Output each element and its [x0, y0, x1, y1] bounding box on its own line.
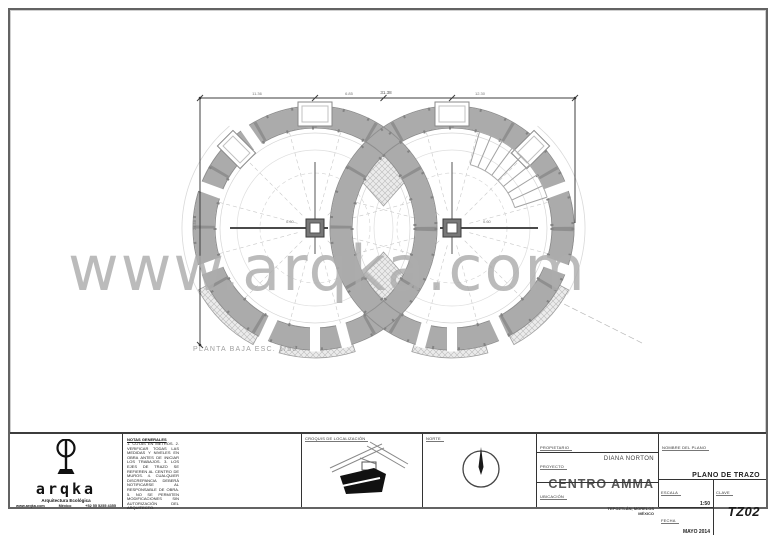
- north-cell: NORTE: [422, 434, 536, 507]
- notes-cell: NOTAS GENERALES 1. COTAS EN METROS. 2. V…: [122, 434, 301, 507]
- dim-seg-right: 12.30: [475, 91, 486, 96]
- project-row: PROYECTO CENTRO AMMA: [537, 452, 658, 482]
- sheet-key-row: CLAVE TZ02: [713, 480, 766, 535]
- owner-label: PROPIETARIO: [540, 445, 572, 451]
- floor-plan-drawing: 0.60 0.60 31.38 11.36 6.85 12.30 24.58 P…: [10, 10, 778, 446]
- croquis-label: CROQUIS DE LOCALIZACIÓN: [305, 436, 368, 442]
- scale-label: ESCALA: [661, 490, 681, 496]
- logo-cell: arqka Arquitectura Ecológica www.arqka.c…: [10, 434, 122, 507]
- center-dim-left: 0.60: [286, 219, 295, 224]
- key-label: CLAVE: [716, 490, 733, 496]
- sheet-border: 0.60 0.60 31.38 11.36 6.85 12.30 24.58 P…: [8, 8, 768, 509]
- dim-height: 24.58: [192, 219, 197, 230]
- scale-row: ESCALA 1:50: [659, 480, 713, 507]
- contact-city: México: [59, 504, 72, 508]
- dim-seg-mid: 6.85: [345, 91, 354, 96]
- north-label: NORTE: [426, 436, 444, 442]
- location-sketch: [302, 434, 423, 505]
- location-row: UBICACIÓN TEPOZTLÁN, MORELOS MÉXICO: [537, 482, 658, 516]
- owner-row: PROPIETARIO DIANA NORTON: [537, 434, 658, 452]
- project-label: PROYECTO: [540, 464, 567, 470]
- sheet-key-value: TZ02: [716, 504, 763, 519]
- contact-web: www.arqka.com: [16, 504, 45, 508]
- sheet-cell: NOMBRE DEL PLANO PLANO DE TRAZO ESCALA 1…: [658, 434, 766, 507]
- north-arrow-icon: [423, 434, 537, 505]
- logo-contact: www.arqka.com México +52 55 5255 4355: [10, 503, 122, 508]
- logo-name: arqka: [10, 482, 122, 497]
- notes-body: 1. COTAS EN METROS. 2. VERIFICAR TODAS L…: [127, 442, 179, 511]
- title-block: arqka Arquitectura Ecológica www.arqka.c…: [10, 432, 766, 507]
- sheet-name-row: NOMBRE DEL PLANO PLANO DE TRAZO: [659, 434, 766, 479]
- date-value: MAYO 2014: [661, 529, 710, 535]
- plan-caption: PLANTA BAJA ESC. 1/50: [193, 346, 297, 353]
- location-label: UBICACIÓN: [540, 494, 567, 500]
- contact-phone: +52 55 5255 4355: [85, 504, 116, 508]
- project-info-cell: PROPIETARIO DIANA NORTON PROYECTO CENTRO…: [536, 434, 658, 507]
- dim-total: 31.38: [380, 90, 392, 95]
- arqka-logo-icon: [46, 439, 86, 477]
- sheet-name-value: PLANO DE TRAZO: [662, 472, 760, 479]
- date-row: FECHA MAYO 2014: [659, 507, 713, 535]
- location-line2: MÉXICO: [540, 511, 654, 516]
- dim-seg-left: 11.36: [252, 91, 262, 96]
- sheet-name-label: NOMBRE DEL PLANO: [662, 445, 709, 451]
- location-sketch-cell: CROQUIS DE LOCALIZACIÓN: [301, 434, 422, 507]
- center-dim-right: 0.60: [483, 219, 492, 224]
